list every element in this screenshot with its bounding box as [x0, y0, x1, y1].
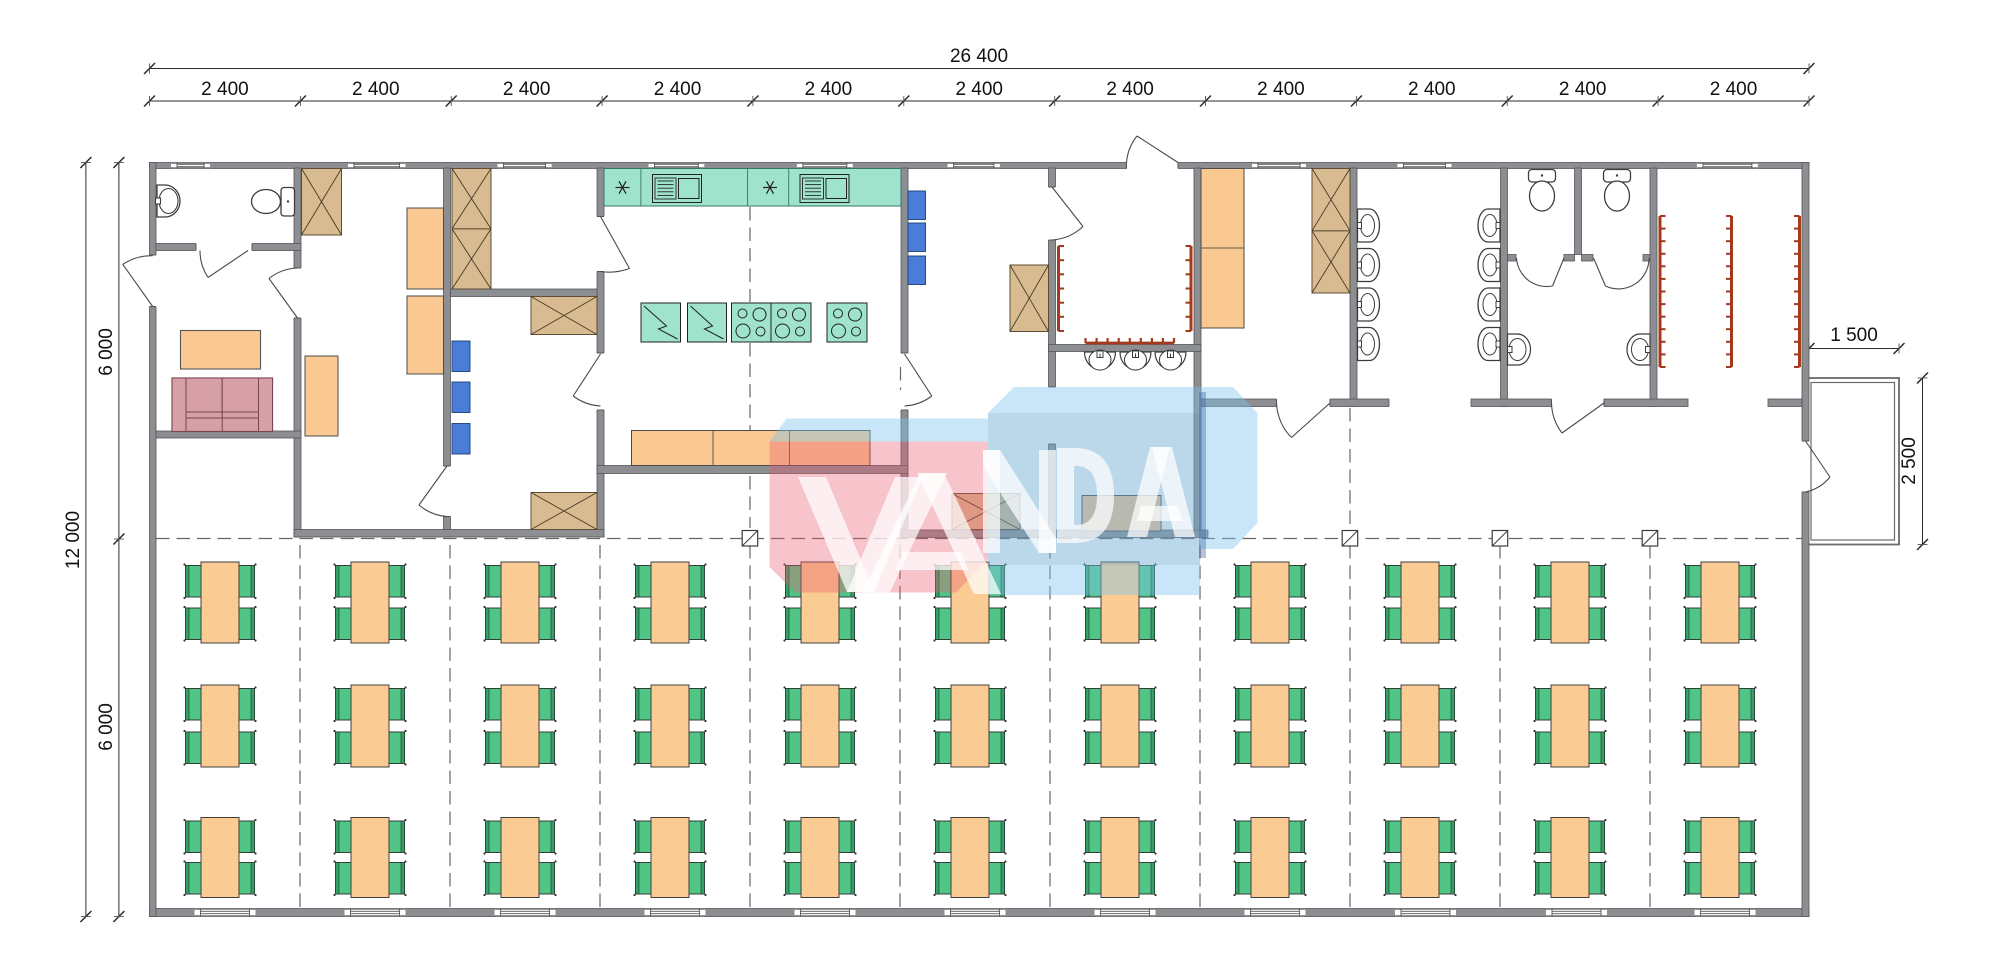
svg-text:2 400: 2 400	[805, 79, 853, 100]
svg-text:2 400: 2 400	[955, 79, 1003, 100]
svg-text:26 400: 26 400	[950, 46, 1008, 67]
svg-text:12 000: 12 000	[63, 511, 84, 569]
svg-text:2 400: 2 400	[201, 79, 249, 100]
svg-text:2 400: 2 400	[1106, 79, 1154, 100]
svg-text:1 500: 1 500	[1830, 325, 1878, 346]
svg-text:2 400: 2 400	[352, 79, 400, 100]
svg-text:2 400: 2 400	[1408, 79, 1456, 100]
svg-text:2 400: 2 400	[1257, 79, 1305, 100]
svg-text:6 000: 6 000	[96, 328, 117, 376]
svg-text:2 400: 2 400	[503, 79, 551, 100]
svg-text:2 500: 2 500	[1899, 437, 1920, 485]
svg-text:6 000: 6 000	[96, 703, 117, 751]
svg-text:2 400: 2 400	[1710, 79, 1758, 100]
svg-text:2 400: 2 400	[654, 79, 702, 100]
svg-text:2 400: 2 400	[1559, 79, 1607, 100]
